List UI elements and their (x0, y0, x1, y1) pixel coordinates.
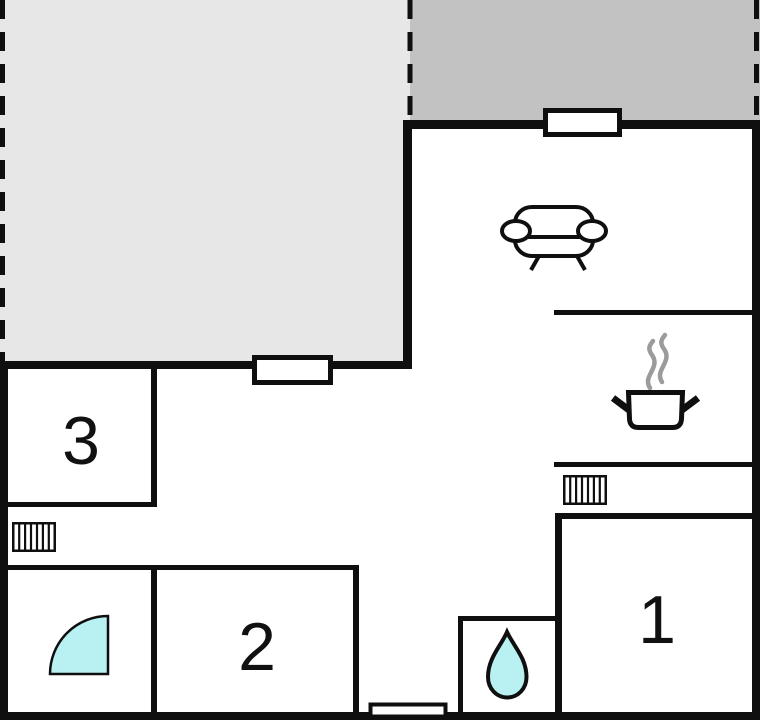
room-2-label: 2 (238, 609, 276, 685)
room2-wall-right (353, 565, 359, 712)
bathroom-wall-left (458, 616, 463, 712)
room1-wall-top (555, 513, 752, 519)
room3-wall-right (151, 365, 157, 507)
terrace-side-wall (403, 120, 412, 369)
pot-body (629, 393, 683, 428)
outer-wall-right (752, 120, 760, 720)
sofa-armrest-right (578, 221, 606, 241)
radiator-icon-right (564, 476, 606, 504)
room-3-label: 3 (62, 403, 100, 479)
entrance-step (371, 705, 446, 717)
window-marker-terrace (255, 358, 331, 383)
kitchen-wall-upper (554, 310, 752, 315)
bathroom-wall-top (458, 616, 555, 621)
room1-wall-left (555, 513, 562, 712)
terrace-left (0, 0, 410, 366)
outer-wall-left (0, 361, 8, 720)
sofa-armrest-left (502, 221, 530, 241)
kitchen-wall-lower (554, 462, 752, 467)
floor-plan: 3 2 1 (0, 0, 760, 720)
room2-wall-left (151, 565, 157, 712)
terrace-right (410, 0, 760, 125)
radiator-icon-left (13, 523, 55, 551)
floor-plan-svg: 3 2 1 (0, 0, 760, 720)
terrace-bottom-wall (0, 361, 412, 369)
room2-wall-top (0, 565, 359, 570)
room-1-label: 1 (638, 582, 676, 658)
room3-wall-bottom (0, 502, 157, 507)
window-marker-top (546, 111, 620, 135)
